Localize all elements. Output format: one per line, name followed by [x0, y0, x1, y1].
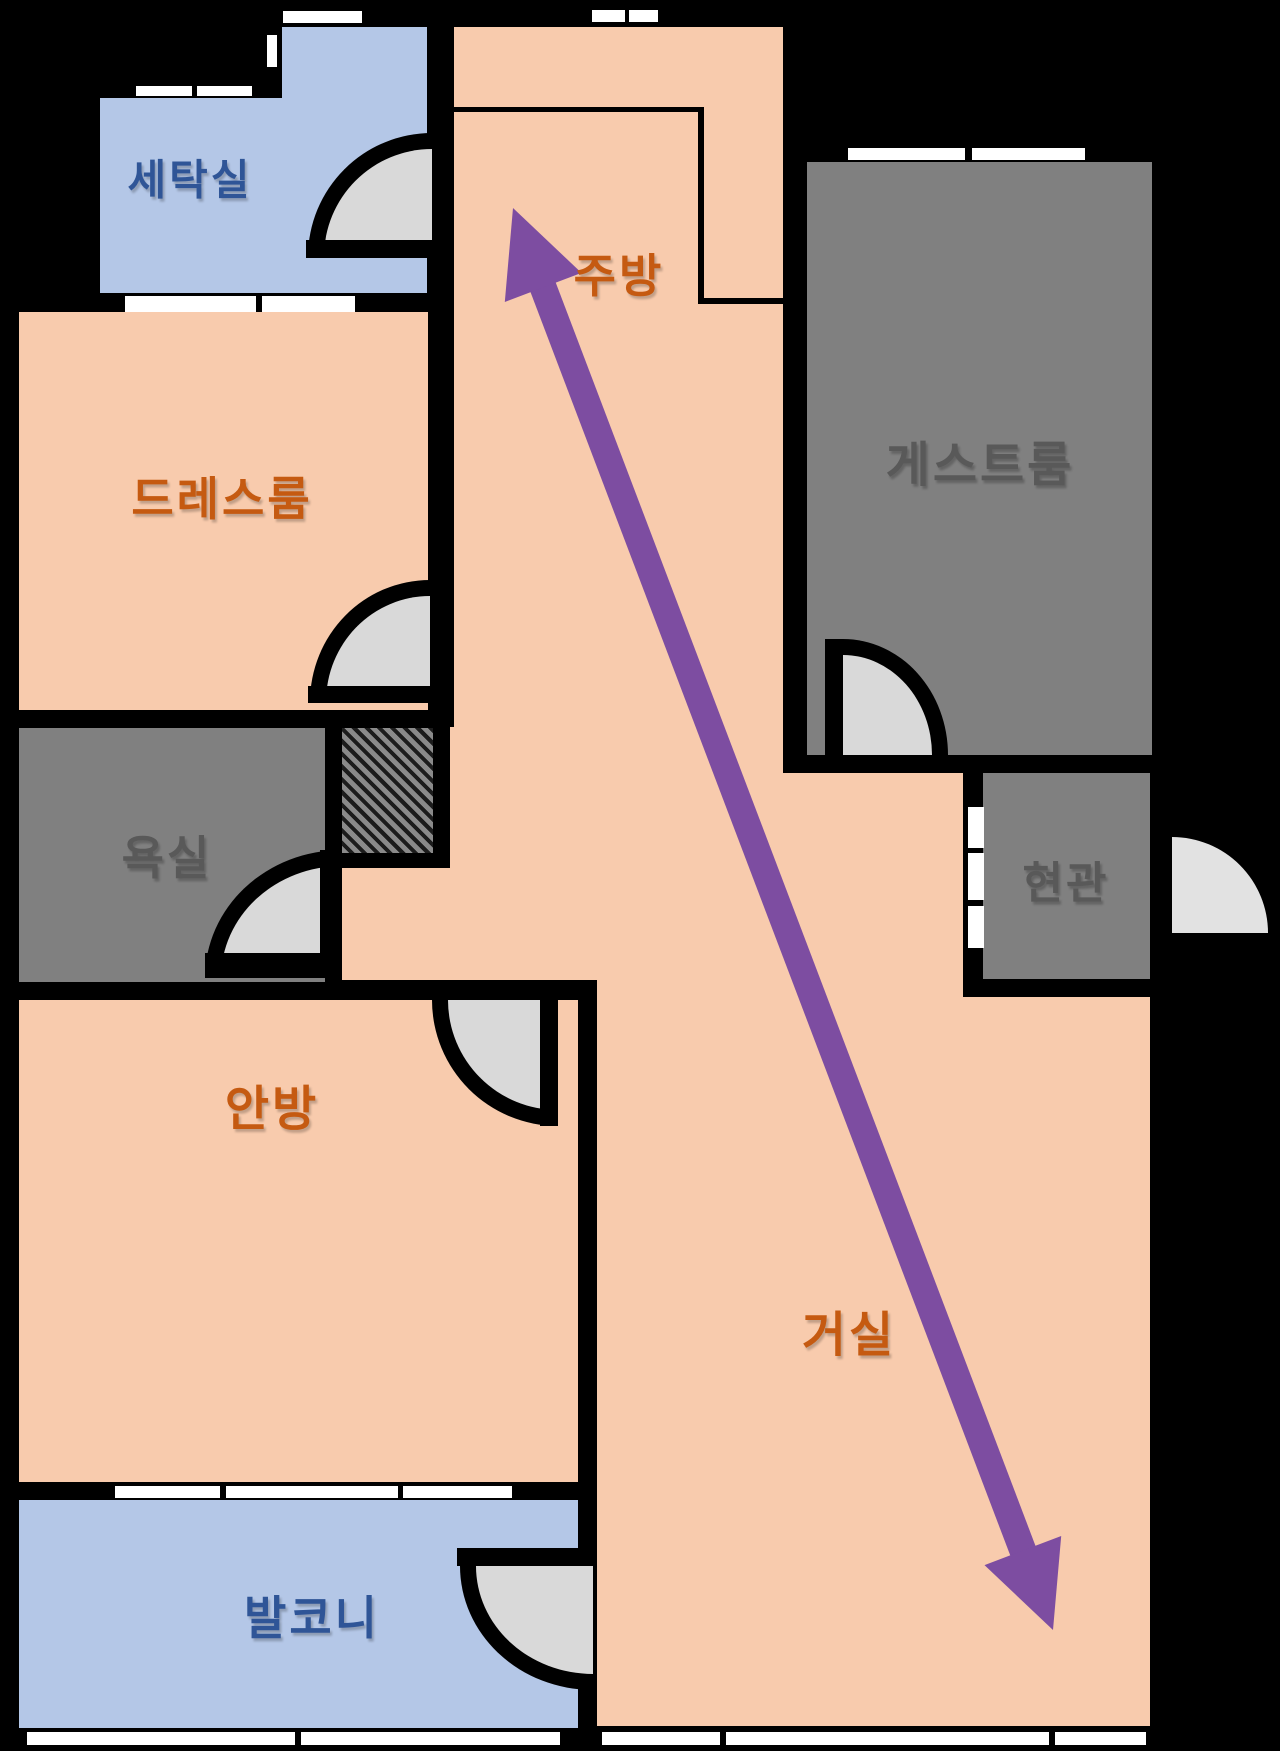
label-living-room: 거실 [802, 1295, 896, 1365]
label-balcony: 발코니 [244, 1582, 380, 1648]
label-master-bedroom: 안방 [225, 1069, 319, 1139]
label-kitchen: 주방 [574, 240, 665, 306]
label-laundry: 세탁실 [128, 147, 253, 208]
label-guest-room: 게스트룸 [886, 425, 1075, 495]
label-bathroom: 욕실 [122, 822, 213, 888]
label-entrance: 현관 [1023, 847, 1110, 911]
floor-plan: 세탁실드레스룸욕실안방발코니주방거실게스트룸현관 [0, 0, 1280, 1751]
label-dressroom: 드레스룸 [131, 463, 312, 529]
